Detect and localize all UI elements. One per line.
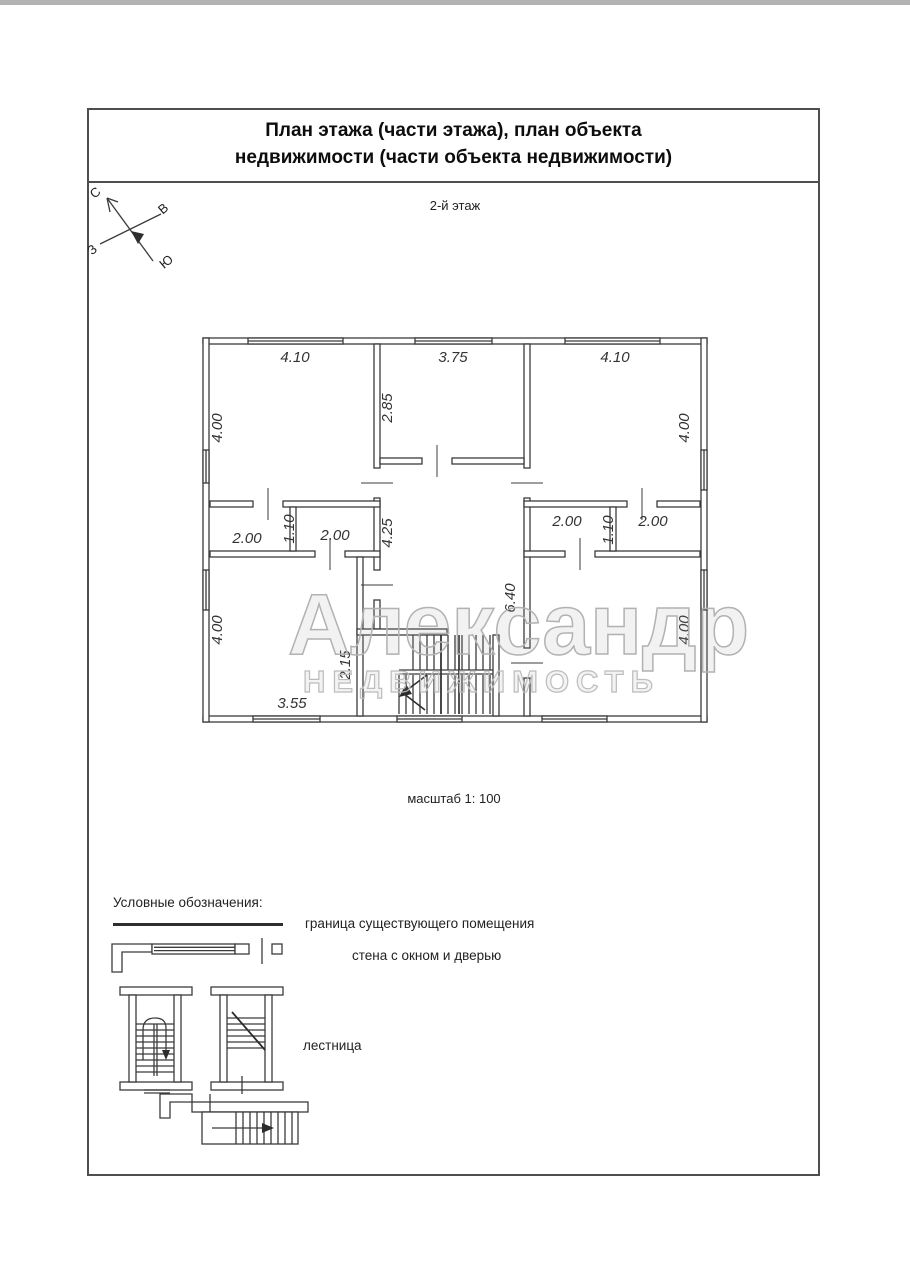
legend-item-boundary-label: граница существующего помещения: [305, 916, 534, 931]
stair-symbols: [116, 984, 306, 1096]
dim-right-closet-a: 2.00: [551, 513, 582, 530]
wall-window-door-symbol: [110, 938, 310, 978]
scale-label: масштаб 1: 100: [354, 791, 554, 806]
dim-stair-height: 2.15: [337, 650, 354, 681]
legend-item-wall-label: стена с окном и дверью: [352, 948, 501, 963]
floor-label: 2-й этаж: [380, 198, 530, 213]
dim-top-mid-height: 2.85: [379, 393, 396, 424]
dim-hall-total: 6.40: [502, 583, 519, 613]
dim-left-closet-b: 2.00: [319, 527, 350, 544]
dim-top-left-width: 4.10: [280, 349, 310, 366]
stair-symbol-horizontal: [150, 1090, 320, 1152]
door-tick-marks: [268, 445, 642, 663]
dim-bottom-right-height: 4.00: [676, 615, 693, 645]
scan-edge: [0, 0, 910, 5]
dim-bottom-left-width: 3.55: [277, 695, 307, 712]
floor-plan-drawing: 4.10 3.75 4.10 4.00 2.85 4.00 2.00 1.10 …: [195, 330, 715, 735]
dim-right-closet-b: 2.00: [637, 513, 668, 530]
dim-top-right-height: 4.00: [676, 413, 693, 443]
dim-left-closet-height: 1.10: [281, 514, 298, 544]
compass-east-label: В: [155, 200, 171, 217]
dimension-labels: 4.10 3.75 4.10 4.00 2.85 4.00 2.00 1.10 …: [209, 349, 693, 712]
dim-top-right-width: 4.10: [600, 349, 630, 366]
staircase-symbol: [399, 635, 493, 714]
title-block: План этажа (части этажа), план объекта н…: [89, 110, 818, 183]
compass-rose-icon: С В З Ю: [85, 183, 185, 278]
boundary-line-symbol: [113, 923, 283, 926]
scanned-floor-plan-page: План этажа (части этажа), план объекта н…: [0, 0, 910, 1280]
dim-right-closet-height: 1.10: [600, 515, 617, 545]
page-title-line2: недвижимости (части объекта недвижимости…: [99, 144, 808, 171]
dim-hall-height: 4.25: [379, 518, 396, 548]
compass-west-label: З: [85, 241, 100, 258]
dim-top-left-height: 4.00: [209, 413, 226, 443]
compass-south-label: Ю: [156, 252, 176, 272]
dim-bottom-left-height: 4.00: [209, 615, 226, 645]
legend-heading: Условные обозначения:: [113, 895, 263, 910]
compass-north-label: С: [87, 184, 104, 202]
legend-item-stair-label: лестница: [303, 1038, 362, 1053]
page-title-line1: План этажа (части этажа), план объекта: [99, 117, 808, 144]
dim-left-closet-a: 2.00: [231, 530, 262, 547]
dim-top-mid-width: 3.75: [438, 349, 468, 366]
